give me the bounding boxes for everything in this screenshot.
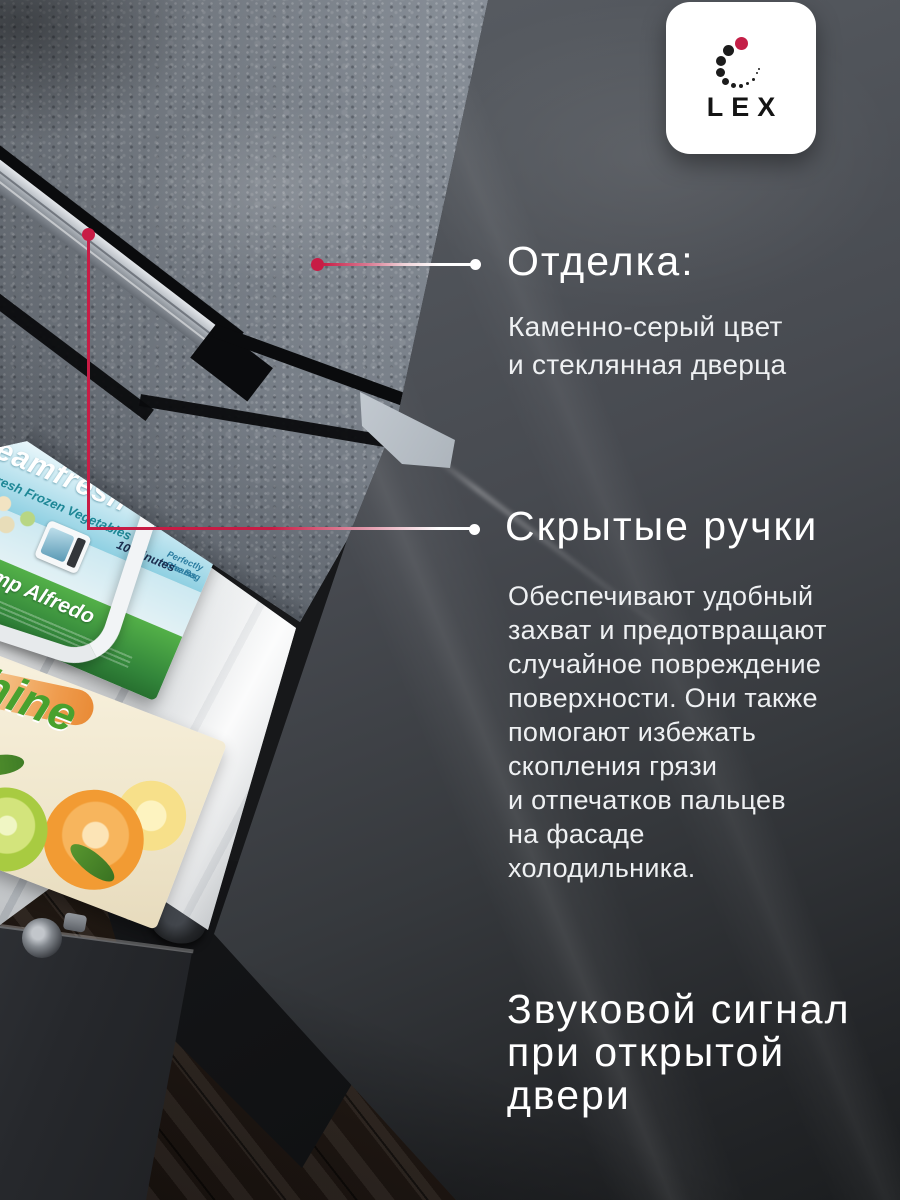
callout-vline-handle — [87, 239, 90, 530]
leaf-icon — [0, 752, 25, 778]
hidden-handles-title: Скрытые ручки — [505, 503, 818, 549]
finish-title: Отделка: — [507, 238, 695, 284]
hinge-pin — [63, 912, 88, 933]
callout-line-finish — [322, 263, 472, 266]
logo-red-dot — [735, 37, 748, 50]
product-feature-card: eamfresh Fresh Frozen Vegetables Perfect… — [0, 0, 900, 1200]
hidden-handles-description: Обеспечивают удобный захват и предотвращ… — [508, 579, 827, 885]
lex-logo-card: LEX — [666, 2, 816, 154]
finish-description: Каменно-серый цвет и стеклянная дверца — [508, 308, 786, 384]
callout-endpoint-finish — [470, 259, 481, 270]
callout-endpoint-handle — [469, 524, 480, 535]
hinge — [22, 918, 62, 958]
door-alarm-title: Звуковой сигнал при открытой двери — [507, 988, 851, 1117]
lex-logo-text: LEX — [666, 92, 816, 123]
callout-hline-handle — [88, 527, 470, 530]
